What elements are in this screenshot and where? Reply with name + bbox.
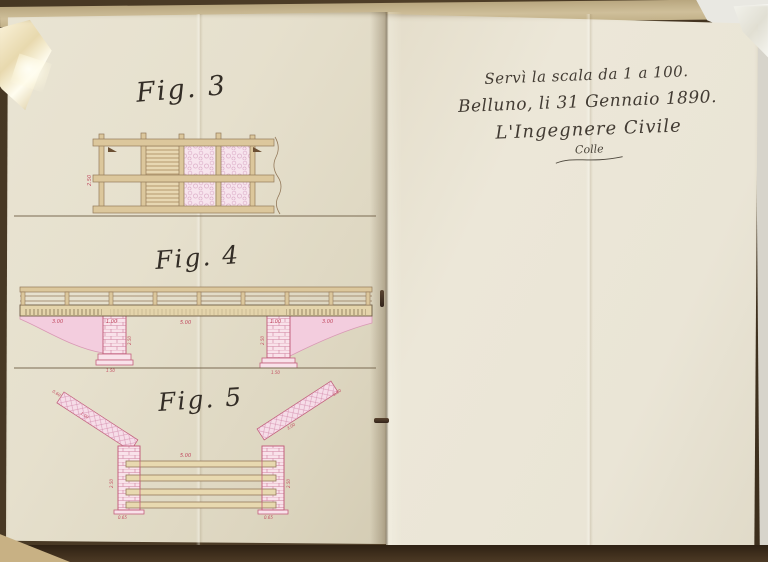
fig4-dim-right-pier-h: 2.50 (260, 336, 265, 345)
table-surface (0, 545, 768, 562)
photographed-engineering-document: 2.50 (0, 0, 768, 562)
fig4-dim-left-pier: 1.00 (106, 319, 117, 325)
fig4-dim-left-footing: 1.50 (106, 368, 115, 373)
fig5-caption: Fig. 5 (157, 382, 244, 417)
fig5-dim-left-pier-h: 2.50 (109, 479, 114, 488)
fig4-dim-span: 5.00 (180, 320, 191, 326)
place-date-line: Belluno, li 31 Gennaio 1890. (431, 86, 744, 118)
fig4-dim-right-footing: 1.50 (271, 370, 280, 375)
fig5-dim-right-pier-w: 0.65 (264, 515, 273, 520)
fig4-caption: Fig. 4 (154, 240, 241, 275)
fig5-dim-span: 5.00 (180, 453, 191, 459)
inscription-block: Servì la scala da 1 a 100. Belluno, li 3… (430, 60, 746, 170)
fig4-bridge-elevation: 3.00 1.00 5.00 1.00 3.00 2.50 2.50 1.50 … (14, 287, 376, 375)
fig5-dim-left-pier-w: 0.65 (118, 515, 127, 520)
fig4-dim-left-slope: 3.00 (52, 319, 63, 325)
fig4-dim-right-slope: 3.00 (322, 319, 333, 325)
fig3-dim-height: 2.50 (87, 175, 93, 186)
fig3-timber-elevation: 2.50 (14, 133, 376, 216)
fig4-dim-left-pier-h: 2.50 (127, 336, 132, 345)
fig5-dim-left-wing-cap: 0.60 (51, 389, 62, 398)
fig4-dim-right-pier: 1.00 (270, 319, 281, 325)
fig5-dim-right-pier-h: 2.50 (286, 479, 291, 488)
